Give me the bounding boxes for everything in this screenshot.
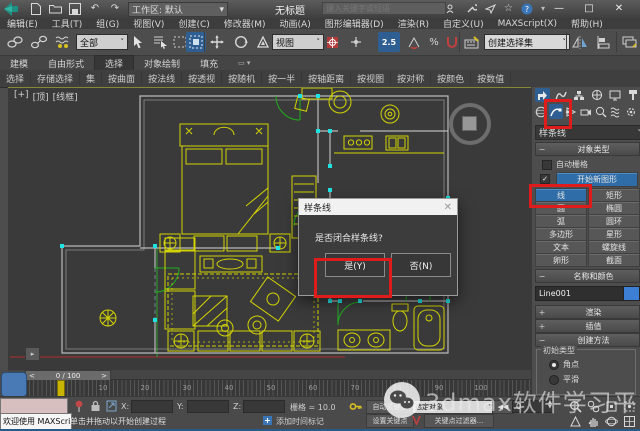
armchair [250, 277, 295, 321]
ribbon-item-by-surface[interactable]: 按曲面 [102, 72, 142, 85]
ribbon-item-by-symmetry[interactable]: 按对称 [391, 72, 431, 85]
btn-egg[interactable]: 卵形 [535, 253, 587, 267]
tick-label: 10 [99, 384, 108, 392]
name-color-rollout[interactable]: −名称和颜色 [535, 269, 640, 283]
chevron-down-icon: ˅ [121, 38, 125, 46]
percent-snap-icon[interactable]: % [424, 32, 444, 52]
snap-mode-label: 2.5 [382, 38, 396, 47]
sign-in-icon[interactable] [446, 4, 458, 14]
radio-smooth-label: 平滑 [563, 374, 579, 385]
ribbon-tabs: 建模 自由形式 选择 对象绘制 填充 ▭ ▾ [0, 56, 640, 70]
menu-bar: 编辑(E) 工具(T) 组(G) 视图(V) 创建(C) 修改器(M) 动画(A… [0, 18, 640, 29]
snaps-toggle-25-icon[interactable]: 2.5 [378, 32, 400, 52]
lights-category-icon[interactable] [564, 104, 578, 119]
start-new-shape-row: ✓ [540, 174, 550, 184]
radio-smooth[interactable]: 平滑 [549, 374, 579, 385]
app-logo-icon[interactable] [2, 1, 22, 17]
ribbon-item-by-view[interactable]: 按视图 [351, 72, 391, 85]
ribbon-minimize-icon[interactable]: ▭ ▾ [228, 58, 260, 68]
add-time-tag-label[interactable]: 添加时间标记 [276, 416, 324, 427]
hierarchy-tab-icon[interactable] [571, 88, 586, 102]
bed [182, 146, 268, 234]
cameras-category-icon[interactable] [579, 104, 593, 119]
z-coordinate-field[interactable] [243, 400, 285, 413]
key-filters-color-icon [412, 415, 421, 425]
rollout-title: 名称和颜色 [548, 271, 639, 282]
viewport-menu-pov[interactable]: [顶] [33, 90, 49, 103]
viewport-label: [+] [顶] [线框] [14, 90, 78, 103]
y-coordinate-field[interactable] [187, 400, 229, 413]
rollout-title: 创建方法 [548, 335, 639, 346]
align-icon[interactable] [594, 32, 614, 52]
x-coordinate-field[interactable] [131, 400, 173, 413]
systems-category-icon[interactable] [624, 104, 638, 119]
selection-filter-dropdown[interactable]: 全部˅ [76, 34, 128, 50]
shapes-category-icon[interactable] [549, 104, 563, 119]
tick-label: 70 [351, 384, 360, 392]
ribbon-tab-selection[interactable]: 选择 [94, 55, 134, 71]
ribbon-item-store-selection[interactable]: 存储选择 [31, 72, 80, 85]
command-panel: 样条线 ˅ −对象类型 自动栅格 ✓ 开始新图形 线 矩形 圆 椭圆 弧 圆环 … [531, 87, 640, 397]
auto-key-icon[interactable] [349, 401, 362, 412]
initial-type-group: 初始类型 角点 平滑 [536, 349, 636, 395]
bath-counter [338, 330, 390, 350]
collapse-icon: − [536, 336, 548, 345]
interpolation-rollout[interactable]: +插值 [535, 319, 640, 333]
absolute-offset-toggle-icon[interactable] [106, 400, 117, 412]
time-slider[interactable]: < 0 / 100 > [8, 370, 531, 380]
rendering-rollout[interactable]: +渲染 [535, 305, 640, 319]
btn-helix[interactable]: 螺旋线 [588, 240, 640, 254]
use-pivot-center-icon[interactable] [322, 32, 342, 52]
selection-lock-icon[interactable] [90, 400, 101, 412]
dialog-no-button[interactable]: 否(N) [391, 253, 451, 277]
menu-item-maxscript[interactable]: MAXScript(X) [491, 19, 564, 29]
command-panel-tabs [535, 88, 640, 102]
expand-icon: + [536, 322, 548, 331]
ribbon-item-by-normal[interactable]: 按法线 [142, 72, 182, 85]
infocenter-icons: ☆ ? ▾ [446, 1, 545, 16]
autogrid-row: 自动栅格 [542, 159, 588, 170]
radio-dot [549, 375, 559, 385]
radio-corner[interactable]: 角点 [549, 359, 579, 370]
ribbon-item-select[interactable]: 选择 [0, 72, 31, 85]
named-selection-sets-value: 创建选择集 [488, 36, 533, 49]
ribbon-tab-object-paint[interactable]: 对象绘制 [134, 56, 190, 71]
bind-to-space-warp-icon[interactable] [53, 32, 73, 52]
initial-type-label: 初始类型 [541, 345, 577, 356]
ribbon-item-by-random[interactable]: 按随机 [222, 72, 262, 85]
radio-corner-label: 角点 [563, 359, 579, 370]
grid-setting-label: 栅格 = 10.0 [290, 402, 336, 413]
maximize-button[interactable]: □ [574, 0, 604, 16]
zoom-all-icon[interactable] [584, 399, 602, 414]
select-by-name-icon[interactable] [150, 32, 170, 52]
tick-label: 30 [183, 384, 192, 392]
dialog-title: 样条线 [304, 201, 331, 214]
status-bar: 欢迎使用 MAXScript X: Y: Z: 栅格 = 10.0 单击并拖动以… [0, 396, 640, 430]
redo-icon[interactable]: ↷ [108, 2, 122, 15]
pan-hand-icon[interactable] [584, 414, 602, 429]
add-time-tag-icon[interactable] [262, 415, 273, 426]
create-categories [534, 104, 638, 119]
reference-coordinate-value: 视图 [276, 36, 294, 49]
radio-dot-selected [549, 360, 559, 370]
tick-label: 90 [435, 384, 444, 392]
expand-icon: + [536, 308, 548, 317]
tv-cabinet [200, 256, 262, 272]
reference-coordinate-dropdown[interactable]: 视图˅ [272, 34, 324, 50]
select-and-manipulate-icon[interactable] [346, 32, 366, 52]
rollout-title: 插值 [548, 321, 639, 332]
create-tab-icon[interactable] [535, 88, 550, 102]
selection-filter-value: 全部 [80, 36, 98, 49]
field-of-view-icon[interactable] [566, 414, 584, 429]
window-controls: — □ ✕ [544, 0, 634, 16]
modify-tab-icon[interactable] [553, 88, 568, 102]
object-type-rollout[interactable]: −对象类型 [535, 142, 640, 156]
frame-spinner[interactable]: ▲▼ [548, 400, 552, 410]
communication-icon[interactable] [485, 4, 496, 14]
select-and-link-icon[interactable] [5, 32, 25, 52]
object-name-field[interactable]: Line001 [535, 286, 627, 301]
ribbon-item-by-perspective[interactable]: 按透视 [182, 72, 222, 85]
chevron-down-icon: ▾ [219, 5, 224, 15]
helpers-category-icon[interactable] [594, 104, 608, 119]
mirror-icon[interactable] [570, 32, 590, 52]
btn-ngon[interactable]: 多边形 [535, 227, 587, 241]
prompt-line: 单击并拖动以开始创建过程 [70, 416, 166, 427]
washing-machine [381, 105, 399, 123]
collapse-icon: − [536, 145, 548, 154]
zoom-extents-icon[interactable] [602, 399, 620, 414]
maxscript-mini-listener[interactable]: 欢迎使用 MAXScript [0, 413, 72, 430]
dialog-close-icon[interactable]: ✕ [444, 202, 452, 213]
motion-tab-icon[interactable] [589, 88, 604, 102]
start-new-shape-button[interactable]: 开始新图形 [556, 172, 638, 187]
workspace-dropdown[interactable]: 工作区: 默认 ▾ [128, 2, 228, 17]
frame-forward-arrow[interactable]: > [101, 372, 107, 380]
chevron-down-icon: ˅ [488, 404, 491, 411]
collapse-icon: − [536, 272, 548, 281]
dialog-title-bar[interactable]: 样条线 ✕ [299, 199, 457, 215]
selected-filter-value: 选定对象 [415, 402, 443, 412]
utilities-tab-icon[interactable] [625, 88, 640, 102]
carpet [168, 274, 318, 346]
search-input[interactable] [322, 2, 446, 15]
set-key-button[interactable]: 设置关键点 [366, 414, 414, 428]
window-crossing-toggle-icon[interactable] [186, 32, 206, 52]
btn-donut[interactable]: 圆环 [588, 214, 640, 228]
ribbon-item-by-color[interactable]: 按颜色 [431, 72, 471, 85]
frame-back-arrow[interactable]: < [29, 372, 35, 380]
toilet [392, 304, 408, 311]
3dsmax-window: ↶ ↷ 工作区: 默认 ▾ 无标题 ☆ ? ▾ — □ ✕ 编辑(E) 工具(T… [0, 0, 640, 431]
y-label: Y: [177, 402, 184, 411]
favorites-star-icon[interactable]: ☆ [504, 3, 513, 14]
dialog-message: 是否闭合样条线? [315, 231, 383, 244]
main-toolbar: 全部˅ 视图˅ 2.5 % 创建选择集˅ [0, 29, 640, 56]
geometry-category-icon[interactable] [534, 104, 548, 119]
new-file-icon[interactable] [28, 2, 42, 15]
rollout-title: 渲染 [548, 307, 639, 318]
btn-section[interactable]: 截面 [588, 253, 640, 267]
corner-blue-button[interactable] [1, 372, 27, 397]
autogrid-checkbox[interactable] [542, 160, 552, 170]
quick-access-toolbar: ↶ ↷ [28, 2, 142, 15]
tick-label: 20 [141, 384, 150, 392]
maximize-viewport-toggle-icon[interactable] [620, 414, 638, 429]
select-and-scale-icon[interactable] [253, 32, 273, 52]
help-icon[interactable]: ? [521, 3, 533, 15]
viewport-navigation-cluster [566, 399, 638, 429]
angle-snap-icon[interactable] [404, 32, 424, 52]
dialog-yes-button[interactable]: 是(Y) [325, 253, 385, 277]
auto-key-button[interactable]: 自动关键点 [366, 400, 414, 414]
ribbon-tab-freeform[interactable]: 自由形式 [38, 56, 94, 71]
undo-icon[interactable]: ↶ [88, 2, 102, 15]
ribbon-item-by-half[interactable]: 按一半 [262, 72, 302, 85]
spline-dialog: 样条线 ✕ 是否闭合样条线? 是(Y) 否(N) [298, 198, 458, 296]
shape-type-dropdown[interactable]: 样条线 ˅ [535, 125, 640, 140]
btn-arc[interactable]: 弧 [535, 214, 587, 228]
track-bar[interactable]: 10 20 30 40 50 60 70 80 90 100 [8, 380, 531, 396]
svg-text:?: ? [525, 5, 529, 14]
zoom-icon[interactable] [566, 399, 584, 414]
layer-manager-icon[interactable] [620, 32, 640, 52]
z-label: Z: [233, 402, 241, 411]
orbit-icon[interactable] [602, 414, 620, 429]
select-object-icon[interactable] [128, 32, 148, 52]
btn-line[interactable]: 线 [535, 188, 587, 202]
btn-rectangle[interactable]: 矩形 [588, 188, 640, 202]
rollout-title: 对象类型 [548, 144, 639, 155]
ribbon-tab-populate[interactable]: 填充 [190, 56, 228, 71]
keyboard-override-icon[interactable] [462, 32, 482, 52]
title-bar: ↶ ↷ 工作区: 默认 ▾ 无标题 ☆ ? ▾ — □ ✕ [0, 0, 640, 18]
save-icon[interactable] [68, 2, 82, 15]
chevron-down-icon: ˅ [317, 38, 321, 46]
btn-star[interactable]: 星形 [588, 227, 640, 241]
close-button[interactable]: ✕ [604, 0, 634, 16]
shape-type-value: 样条线 [539, 126, 566, 139]
ribbon-item-by-axis-distance[interactable]: 按轴距离 [302, 72, 351, 85]
btn-ellipse[interactable]: 椭圆 [588, 201, 640, 215]
unlink-selection-icon[interactable] [29, 32, 49, 52]
tick-label: 50 [267, 384, 276, 392]
select-and-rotate-icon[interactable] [231, 32, 251, 52]
zoom-region-icon[interactable] [620, 399, 638, 414]
viewcube-compass[interactable] [449, 103, 491, 145]
display-tab-icon[interactable] [607, 88, 622, 102]
ribbon-selection-panel: 选择 存储选择 集 按曲面 按法线 按透视 按随机 按一半 按轴距离 按视图 按… [0, 70, 640, 88]
space-warps-category-icon[interactable] [609, 104, 623, 119]
tick-label: 100 [474, 384, 487, 392]
go-to-start-button[interactable]: ◀◀ [492, 400, 514, 414]
viewport-menu-general[interactable]: [+] [14, 90, 29, 103]
tick-label: 60 [309, 384, 318, 392]
start-new-shape-checkbox[interactable]: ✓ [540, 174, 550, 184]
btn-text[interactable]: 文本 [535, 240, 587, 254]
x-label: X: [121, 402, 129, 411]
tick-label: 40 [225, 384, 234, 392]
minimize-button[interactable]: — [544, 0, 574, 16]
key-filters-button[interactable]: 关键点过滤器... [424, 414, 494, 428]
mini-curve-editor-button[interactable]: ▸ [25, 347, 40, 361]
autogrid-label: 自动栅格 [556, 159, 588, 170]
named-selection-sets-dropdown[interactable]: 创建选择集˅ [484, 34, 570, 50]
wrench-icon[interactable] [466, 3, 477, 14]
ribbon-item-set[interactable]: 集 [80, 72, 102, 85]
viewcube-top-face[interactable] [462, 116, 477, 131]
open-file-icon[interactable] [48, 2, 62, 15]
ribbon-tab-modeling[interactable]: 建模 [0, 56, 38, 71]
selected-filter-dropdown[interactable]: 选定对象˅ [412, 400, 494, 414]
viewport-menu-shading[interactable]: [线框] [53, 90, 78, 103]
ribbon-item-by-numeric[interactable]: 按数值 [471, 72, 511, 85]
workspace-value: 工作区: 默认 [132, 3, 183, 16]
frame-counter: 0 / 100 [56, 372, 81, 380]
tick-label: 80 [393, 384, 402, 392]
object-color-swatch[interactable] [623, 286, 640, 301]
isolate-selection-icon[interactable] [74, 400, 84, 412]
select-and-move-icon[interactable] [207, 32, 227, 52]
btn-circle[interactable]: 圆 [535, 201, 587, 215]
